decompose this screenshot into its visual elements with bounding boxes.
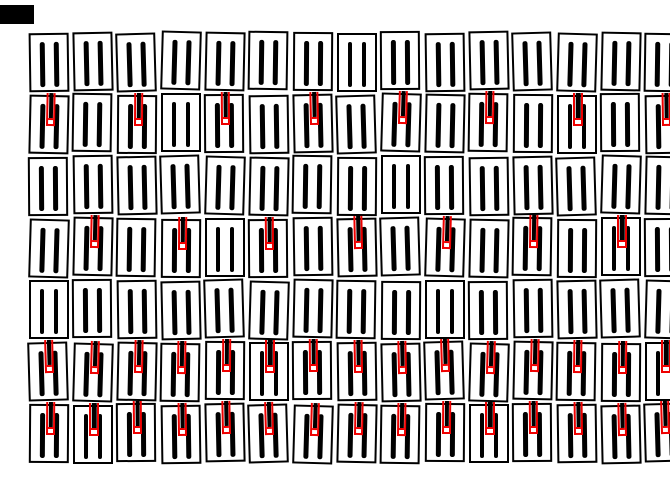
slot-bar-icon	[625, 102, 630, 147]
slot-bar-icon	[216, 165, 222, 210]
marker-black-stub	[180, 403, 185, 428]
slot-bar-icon	[348, 166, 353, 211]
slot-bar-icon	[392, 290, 397, 335]
slot-bar-icon	[170, 165, 176, 210]
red-pin-marker-icon	[308, 339, 318, 372]
red-pin-marker-icon	[486, 341, 496, 374]
slot-bar-icon	[97, 102, 102, 147]
slot-bar-icon	[406, 164, 411, 209]
marker-black-stub	[313, 403, 318, 428]
tile	[204, 32, 245, 92]
slot-bar-icon	[654, 413, 660, 458]
slot-bar-icon	[347, 227, 352, 272]
red-pin-marker-icon	[660, 401, 670, 434]
tile	[337, 156, 377, 215]
tile	[468, 342, 510, 402]
slot-bar-icon	[656, 289, 662, 334]
tile	[336, 218, 377, 278]
tile	[337, 342, 378, 402]
slot-bar-icon	[392, 102, 398, 147]
slot-bar-icon	[493, 40, 498, 85]
tile	[643, 32, 670, 92]
marker-black-stub	[576, 93, 581, 118]
marker-crossbar	[356, 365, 362, 367]
slot-bar-icon	[317, 164, 322, 209]
slot-bar-icon	[215, 103, 220, 148]
red-pin-marker-icon	[133, 340, 143, 373]
marker-black-stub	[92, 215, 97, 240]
tile	[424, 217, 466, 277]
slot-bar-icon	[480, 166, 485, 211]
marker-crossbar	[662, 426, 668, 428]
tile	[513, 279, 554, 339]
red-pin-marker-icon	[309, 92, 319, 125]
red-pin-marker-icon	[264, 217, 274, 250]
slot-bar-icon	[172, 102, 177, 147]
slot-bar-icon	[450, 289, 455, 334]
slot-bar-icon	[346, 104, 352, 149]
red-pin-marker-icon	[573, 93, 583, 126]
slot-bar-icon	[494, 165, 499, 210]
tile	[292, 279, 333, 339]
tile	[644, 279, 670, 339]
tile	[203, 279, 245, 339]
tile	[468, 218, 509, 278]
marker-black-stub	[49, 402, 54, 427]
marker-crossbar	[442, 364, 448, 366]
tile	[205, 218, 245, 277]
marker-black-stub	[620, 215, 625, 240]
slot-bar-icon	[404, 226, 410, 271]
marker-crossbar	[355, 241, 361, 243]
slot-bar-icon	[523, 226, 528, 271]
marker-crossbar	[48, 427, 54, 429]
marker-crossbar	[224, 364, 230, 366]
slot-bar-icon	[127, 165, 132, 210]
tile	[335, 94, 377, 154]
tile	[423, 156, 463, 215]
slot-bar-icon	[216, 350, 221, 395]
tile	[247, 31, 288, 91]
slot-bar-icon	[259, 40, 264, 85]
tile	[117, 280, 158, 340]
slot-bar-icon	[83, 41, 88, 86]
slot-bar-icon	[38, 351, 44, 396]
slot-bar-icon	[524, 288, 529, 333]
marker-crossbar	[619, 240, 625, 242]
tile	[511, 217, 552, 277]
slot-bar-icon	[83, 288, 88, 333]
red-pin-marker-icon	[572, 340, 582, 373]
marker-black-stub	[489, 341, 494, 366]
slot-bar-icon	[568, 228, 573, 273]
marker-black-stub	[664, 340, 669, 365]
tile	[27, 156, 67, 215]
tile	[116, 156, 157, 216]
tile	[247, 218, 287, 277]
tile	[71, 279, 111, 338]
tile	[117, 94, 157, 153]
tile	[556, 280, 597, 340]
red-pin-marker-icon	[221, 401, 231, 434]
slot-bar-icon	[348, 42, 353, 87]
slot-bar-icon	[624, 288, 630, 333]
slot-bar-icon	[215, 412, 220, 457]
tile	[468, 31, 509, 91]
marker-black-stub	[576, 402, 581, 427]
slot-bar-icon	[84, 414, 89, 459]
tile	[644, 156, 670, 216]
slot-bar-icon	[612, 164, 618, 209]
red-pin-marker-icon	[485, 402, 495, 435]
red-pin-marker-icon	[45, 93, 55, 126]
slot-bar-icon	[567, 351, 572, 396]
marker-black-stub	[356, 402, 361, 427]
slot-bar-icon	[84, 164, 89, 209]
slot-bar-icon	[449, 165, 454, 210]
slot-bar-icon	[274, 103, 279, 148]
red-pin-marker-icon	[265, 340, 275, 373]
slot-bar-icon	[347, 289, 352, 334]
tile	[203, 94, 243, 153]
marker-black-stub	[48, 93, 53, 118]
tile	[379, 217, 421, 277]
tile	[557, 404, 598, 464]
slot-bar-icon	[40, 227, 46, 272]
tile	[71, 93, 112, 153]
slot-bar-icon	[434, 351, 440, 396]
tile	[467, 93, 508, 153]
tile	[116, 342, 157, 402]
red-pin-marker-icon	[617, 402, 627, 435]
tile	[424, 94, 465, 154]
red-pin-marker-icon	[661, 340, 670, 373]
marker-crossbar	[531, 364, 537, 366]
slot-bar-icon	[273, 166, 278, 211]
tile	[291, 155, 332, 215]
marker-black-stub	[267, 217, 272, 242]
tile	[645, 94, 670, 154]
marker-black-stub	[268, 340, 273, 365]
slot-bar-icon	[83, 226, 88, 271]
slot-bar-icon	[54, 41, 59, 86]
tile	[512, 156, 553, 216]
tile	[248, 280, 290, 340]
red-pin-marker-icon	[617, 215, 627, 248]
tile	[73, 405, 113, 464]
marker-black-stub	[531, 401, 536, 426]
slot-bar-icon	[258, 413, 264, 458]
tile	[557, 95, 597, 154]
slot-bar-icon	[362, 166, 367, 211]
marker-black-stub	[311, 92, 316, 117]
marker-black-stub	[356, 340, 361, 365]
slot-bar-icon	[568, 41, 574, 86]
red-pin-marker-icon	[176, 341, 186, 374]
red-pin-marker-icon	[134, 93, 144, 126]
tile	[469, 156, 510, 216]
slot-bar-icon	[611, 414, 616, 459]
slot-bar-icon	[186, 102, 191, 147]
tile	[29, 404, 69, 463]
tile	[161, 218, 201, 277]
marker-crossbar	[222, 117, 228, 119]
red-pin-marker-icon	[44, 340, 54, 373]
marker-crossbar	[575, 118, 581, 120]
pattern-canvas	[0, 0, 670, 503]
tile	[293, 217, 334, 277]
slot-bar-icon	[83, 102, 88, 147]
tile	[27, 341, 69, 401]
tile	[599, 93, 639, 152]
slot-bar-icon	[537, 165, 542, 210]
marker-black-stub	[445, 216, 450, 241]
slot-bar-icon	[230, 165, 236, 210]
marker-crossbar	[400, 116, 406, 118]
red-pin-marker-icon	[89, 403, 99, 436]
tile	[337, 33, 377, 92]
marker-black-stub	[93, 341, 98, 366]
marker-crossbar	[134, 426, 140, 428]
tile	[291, 341, 331, 400]
marker-crossbar	[311, 117, 317, 119]
slot-bar-icon	[127, 412, 132, 457]
tile	[159, 342, 200, 402]
slot-bar-icon	[126, 42, 132, 87]
marker-black-stub	[46, 340, 51, 365]
marker-black-stub	[621, 341, 626, 366]
tile	[160, 280, 201, 340]
slot-bar-icon	[538, 103, 543, 148]
slot-bar-icon	[436, 289, 441, 334]
slot-bar-icon	[273, 40, 278, 85]
slot-bar-icon	[449, 103, 454, 148]
slot-bar-icon	[655, 41, 660, 86]
tile	[28, 94, 69, 154]
marker-black-stub	[401, 91, 406, 116]
tile	[204, 403, 245, 463]
tile	[380, 93, 422, 153]
slot-bar-icon	[580, 165, 586, 210]
tile	[379, 31, 419, 90]
slot-bar-icon	[260, 104, 265, 149]
slot-bar-icon	[362, 42, 367, 87]
red-pin-marker-icon	[132, 401, 142, 434]
red-pin-marker-icon	[353, 216, 363, 249]
slot-bar-icon	[186, 41, 192, 86]
red-pin-marker-icon	[574, 402, 584, 435]
slot-bar-icon	[97, 288, 102, 333]
tile	[512, 341, 553, 401]
slot-bar-icon	[655, 165, 660, 210]
slot-bar-icon	[479, 40, 484, 85]
slot-bar-icon	[260, 351, 265, 396]
tile	[205, 341, 245, 400]
tile	[556, 32, 598, 92]
red-pin-marker-icon	[440, 339, 450, 372]
slot-bar-icon	[611, 102, 616, 147]
slot-bar-icon	[260, 289, 266, 334]
marker-crossbar	[310, 364, 316, 366]
tile	[555, 342, 596, 402]
tile	[557, 218, 597, 277]
marker-crossbar	[487, 116, 493, 118]
slot-bar-icon	[127, 351, 132, 396]
tile	[115, 403, 155, 462]
tile	[600, 32, 641, 92]
marker-black-stub	[399, 341, 404, 366]
slot-bar-icon	[361, 289, 366, 334]
slot-bar-icon	[185, 289, 190, 334]
tile	[645, 342, 670, 401]
slot-bar-icon	[405, 40, 410, 85]
marker-black-stub	[662, 401, 667, 426]
slot-bar-icon	[493, 290, 498, 335]
tile	[115, 218, 156, 278]
marker-crossbar	[444, 426, 450, 428]
red-pin-marker-icon	[618, 341, 628, 374]
tile	[381, 280, 421, 339]
tile	[72, 32, 113, 92]
tile	[72, 217, 113, 277]
tile-grid	[0, 0, 670, 503]
tile	[425, 32, 466, 92]
tile	[115, 32, 157, 92]
slot-bar-icon	[391, 413, 396, 458]
slot-bar-icon	[626, 165, 632, 210]
slot-bar-icon	[493, 228, 498, 273]
slot-bar-icon	[259, 228, 264, 273]
slot-bar-icon	[141, 227, 146, 272]
marker-crossbar	[487, 427, 493, 429]
slot-bar-icon	[304, 41, 309, 86]
tile	[247, 403, 289, 463]
slot-bar-icon	[610, 289, 616, 334]
slot-bar-icon	[54, 289, 59, 334]
red-pin-marker-icon	[397, 340, 407, 373]
tile	[249, 94, 290, 154]
tile	[72, 342, 114, 402]
tile	[643, 403, 670, 463]
slot-bar-icon	[303, 350, 308, 395]
tile	[335, 280, 376, 340]
marker-crossbar	[576, 427, 582, 429]
slot-bar-icon	[140, 41, 146, 86]
slot-bar-icon	[523, 165, 528, 210]
marker-black-stub	[575, 340, 580, 365]
tile	[380, 342, 421, 402]
slot-bar-icon	[274, 290, 280, 335]
marker-black-stub	[531, 215, 536, 240]
marker-crossbar	[91, 240, 97, 242]
marker-crossbar	[575, 365, 581, 367]
slot-bar-icon	[304, 226, 309, 271]
slot-bar-icon	[436, 227, 442, 272]
slot-bar-icon	[54, 228, 60, 273]
tile	[467, 280, 507, 339]
red-pin-marker-icon	[353, 402, 363, 435]
marker-crossbar	[355, 427, 361, 429]
red-pin-marker-icon	[178, 217, 188, 250]
slot-bar-icon	[214, 289, 220, 334]
red-pin-marker-icon	[484, 91, 494, 124]
slot-bar-icon	[347, 413, 352, 458]
slot-bar-icon	[53, 166, 58, 211]
marker-black-stub	[136, 340, 141, 365]
slot-bar-icon	[40, 289, 45, 334]
tile	[600, 404, 641, 464]
tile	[423, 341, 465, 401]
tile	[293, 32, 333, 91]
marker-black-stub	[619, 403, 624, 428]
slot-bar-icon	[523, 412, 528, 457]
tile	[511, 403, 551, 462]
tile	[643, 218, 670, 277]
marker-black-stub	[532, 339, 537, 364]
slot-bar-icon	[480, 413, 485, 458]
red-pin-marker-icon	[264, 402, 274, 435]
marker-black-stub	[488, 402, 493, 427]
slot-bar-icon	[581, 289, 586, 334]
slot-bar-icon	[390, 227, 396, 272]
slot-bar-icon	[171, 351, 176, 396]
marker-black-stub	[311, 339, 316, 364]
red-pin-marker-icon	[46, 402, 56, 435]
marker-black-stub	[442, 339, 447, 364]
tile	[160, 31, 202, 91]
slot-bar-icon	[303, 288, 308, 333]
slot-bar-icon	[128, 104, 133, 149]
tile	[511, 31, 553, 91]
slot-bar-icon	[98, 164, 103, 209]
tile	[425, 280, 465, 339]
slot-bar-icon	[625, 41, 630, 86]
tile	[292, 94, 333, 154]
marker-crossbar	[531, 240, 537, 242]
red-pin-marker-icon	[442, 401, 452, 434]
slot-bar-icon	[479, 227, 484, 272]
slot-bar-icon	[612, 226, 617, 271]
slot-bar-icon	[436, 412, 441, 457]
marker-black-stub	[445, 401, 450, 426]
marker-black-stub	[399, 403, 404, 428]
tile	[555, 156, 597, 216]
marker-black-stub	[181, 217, 186, 242]
slot-bar-icon	[172, 40, 178, 85]
slot-bar-icon	[538, 288, 543, 333]
slot-bar-icon	[303, 103, 308, 148]
marker-crossbar	[267, 365, 273, 367]
marker-crossbar	[223, 426, 229, 428]
red-pin-marker-icon	[396, 403, 406, 436]
marker-black-stub	[179, 341, 184, 366]
tile	[161, 93, 201, 152]
slot-bar-icon	[171, 290, 176, 335]
tile	[29, 280, 69, 339]
marker-black-stub	[223, 92, 228, 117]
slot-bar-icon	[228, 288, 234, 333]
slot-bar-icon	[230, 227, 235, 272]
slot-bar-icon	[524, 103, 529, 148]
marker-crossbar	[91, 428, 97, 430]
slot-bar-icon	[317, 289, 322, 334]
slot-bar-icon	[39, 166, 44, 211]
slot-bar-icon	[216, 227, 221, 272]
marker-black-stub	[664, 93, 669, 118]
red-pin-marker-icon	[310, 403, 320, 436]
tile	[469, 404, 509, 463]
slot-bar-icon	[391, 40, 396, 85]
